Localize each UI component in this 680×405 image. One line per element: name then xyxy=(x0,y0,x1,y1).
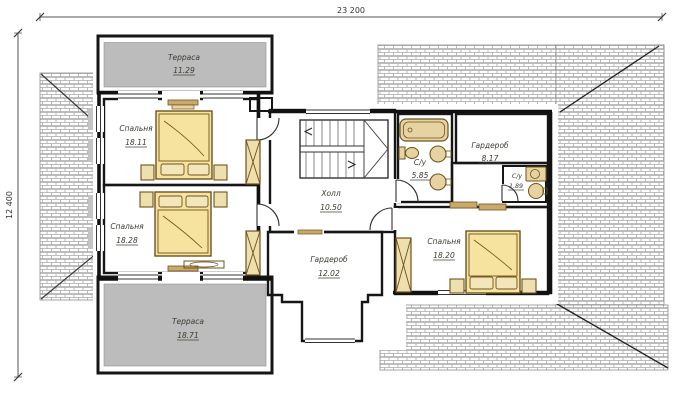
door-opening-su-small xyxy=(500,184,508,201)
terrace-top-area: 11.29 xyxy=(173,66,195,75)
window-stair-top xyxy=(306,107,370,116)
bedroom-1-label: Спальня xyxy=(119,124,153,133)
wardrobe-right-area: 8.17 xyxy=(482,154,499,163)
terrace-bottom-area: 18.71 xyxy=(177,331,198,340)
washing-machine-icon xyxy=(526,167,546,181)
bedroom-2-label: Спальня xyxy=(110,222,144,231)
hall-label: Холл xyxy=(320,189,341,198)
roof-left-strip xyxy=(40,73,98,300)
bedroom-3-area: 18.20 xyxy=(433,251,455,260)
window-b2-bottom-1 xyxy=(118,272,158,282)
bathroom-main-label: С/у xyxy=(414,158,427,167)
roof-right xyxy=(556,45,664,332)
bathroom-small-label: С/у xyxy=(512,173,523,180)
window-b1-left-2 xyxy=(88,138,104,164)
terrace-bottom-label: Терраса xyxy=(172,317,204,326)
threshold-b3-2 xyxy=(479,204,506,210)
hall-area: 10.50 xyxy=(320,203,342,212)
door-opening-b2 xyxy=(255,204,273,226)
bathtub-icon xyxy=(400,119,448,141)
window-b1-left-1 xyxy=(88,106,104,132)
wardrobe-right-label: Гардероб xyxy=(471,141,509,150)
wardrobe-center-area: 12.02 xyxy=(318,269,340,278)
dimension-top-label: 23 200 xyxy=(337,6,365,15)
closet-icon-bedroom-3 xyxy=(396,238,411,292)
dimension-left: 12 400 xyxy=(5,29,22,381)
bedroom-2-area: 18.28 xyxy=(116,236,138,245)
window-wardrobe-bottom xyxy=(305,336,355,345)
bathroom-small-area: 1.89 xyxy=(509,183,523,190)
roof-bottom-band xyxy=(380,305,668,370)
door-opening-wardrobe xyxy=(294,227,324,237)
window-b1-top-2 xyxy=(203,91,243,101)
bedroom-1-area: 18.11 xyxy=(125,138,146,147)
bathroom-main-area: 5.85 xyxy=(412,171,429,180)
dimension-top: 23 200 xyxy=(36,6,666,21)
floor-plan-canvas: Терраса 11.29 Спальня 18.11 Спальня 18.2… xyxy=(0,0,680,405)
floor-plan-drawing: Терраса 11.29 Спальня 18.11 Спальня 18.2… xyxy=(0,0,680,405)
closet-icon-bedroom-1 xyxy=(246,140,260,184)
wardrobe-center-label: Гардероб xyxy=(310,255,348,264)
staircase xyxy=(300,120,388,178)
window-b2-left-1 xyxy=(88,193,104,219)
door-opening-b1 xyxy=(255,118,273,140)
window-b2-bottom-2 xyxy=(203,272,243,282)
room-terrace-top xyxy=(98,36,272,93)
threshold-b3-1 xyxy=(450,202,477,208)
window-b1-top-1 xyxy=(118,91,158,101)
closet-icon-bedroom-2 xyxy=(246,231,260,275)
bedroom-3-label: Спальня xyxy=(427,237,461,246)
terrace-top-label: Терраса xyxy=(168,53,200,62)
dimension-left-label: 12 400 xyxy=(5,191,14,219)
window-b2-left-2 xyxy=(88,225,104,251)
